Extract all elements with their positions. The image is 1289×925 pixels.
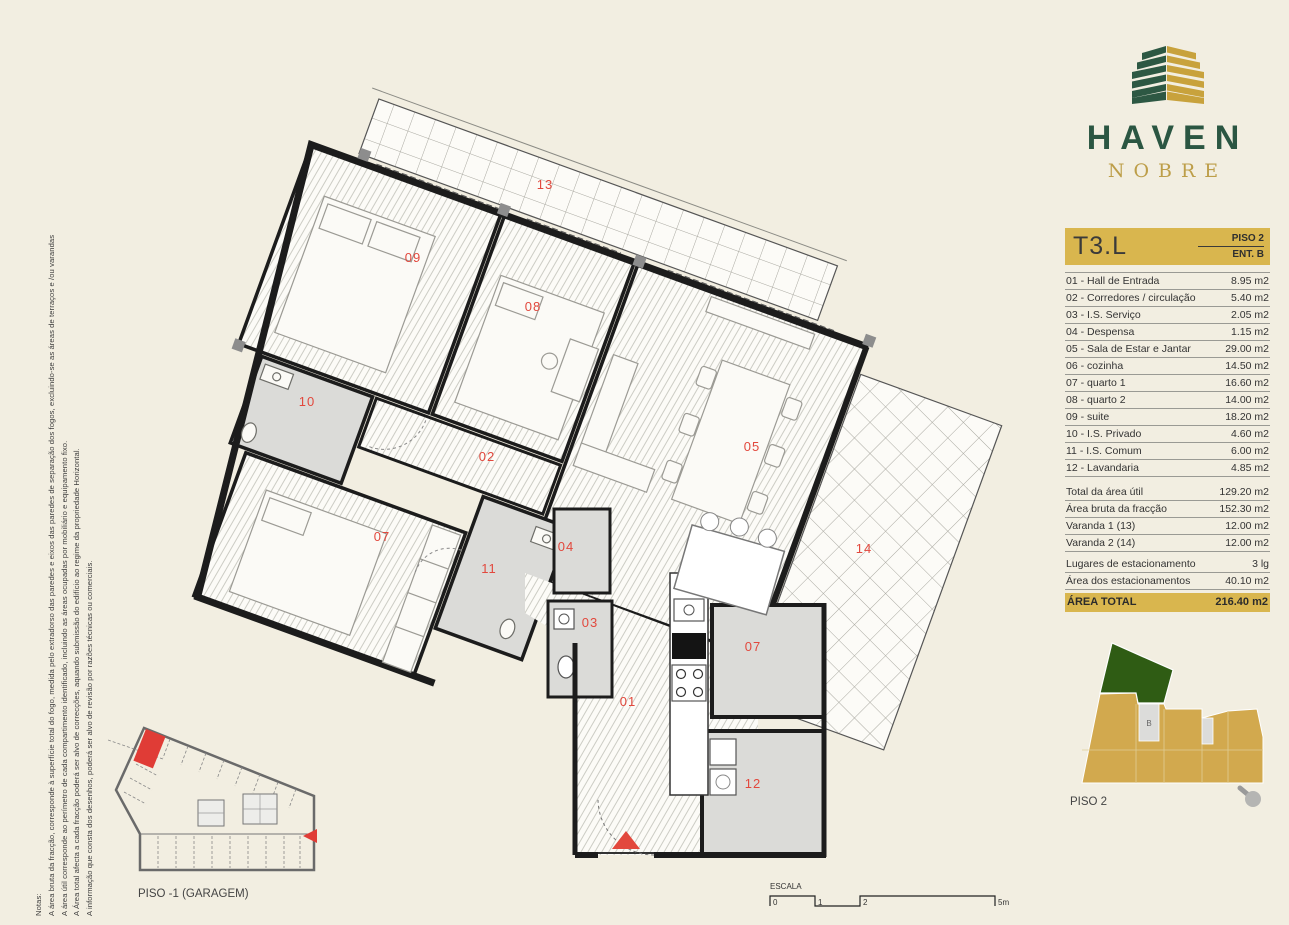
site-building [1082,693,1263,783]
table-row: Varanda 2 (14)12.00 m2 [1065,535,1270,552]
site-caption: PISO 2 [1070,796,1107,808]
scale-tick-0: 0 [773,898,778,907]
unit-floor: PISO 2 [1198,233,1264,244]
room-label-14: 14 [856,541,872,556]
table-row: 12 - Lavandaria4.85 m2 [1065,460,1270,477]
table-row: 05 - Sala de Estar e Jantar29.00 m2 [1065,341,1270,358]
room-label-11: 11 [481,561,497,576]
notes-title: Notas: [33,24,46,916]
brand-subname: NOBRE [1065,160,1270,182]
scale-tick-1: 1 [818,898,823,907]
areas-table: 01 - Hall de Entrada8.95 m2 02 - Corredo… [1065,272,1270,612]
unit-entrance: ENT. B [1198,249,1264,260]
garage-entry-arrow [303,829,317,843]
table-row: 11 - I.S. Comum6.00 m2 [1065,443,1270,460]
room-label-10: 10 [299,394,315,409]
table-row: 06 - cozinha14.50 m2 [1065,358,1270,375]
unit-code: T3.L [1073,232,1127,261]
room-label-13: 13 [537,177,553,192]
note-line: A área bruta da fracção, corresponde à s… [46,24,59,916]
scale-tick-5m: 5m [998,898,1009,907]
garage-plan: PISO -1 (GARAGEM) [108,712,368,917]
brand-logo-icon [1120,42,1216,104]
area-total-row: ÁREA TOTAL 216.40 m2 [1065,593,1270,612]
compass-icon [1245,791,1261,807]
table-row: 01 - Hall de Entrada8.95 m2 [1065,273,1270,290]
gray-room-07 [712,605,824,717]
table-row: Total da área útil129.20 m2 [1065,484,1270,501]
table-row: 03 - I.S. Serviço2.05 m2 [1065,307,1270,324]
room-label-05: 05 [744,439,760,454]
site-core-label: B [1146,719,1151,728]
table-row: 10 - I.S. Privado4.60 m2 [1065,426,1270,443]
table-row: Área dos estacionamentos40.10 m2 [1065,573,1270,590]
room-label-01: 01 [620,694,636,709]
scale-tick-2: 2 [863,898,868,907]
table-row: Varanda 1 (13)12.00 m2 [1065,518,1270,535]
table-row: 09 - suite18.20 m2 [1065,409,1270,426]
scale-title: ESCALA [770,882,802,891]
room-label-12: 12 [745,776,761,791]
room-label-09: 09 [405,250,421,265]
table-row: 02 - Corredores / circulação5.40 m2 [1065,290,1270,307]
banner-divider [1198,246,1264,247]
garage-caption: PISO -1 (GARAGEM) [138,888,249,900]
table-row: Lugares de estacionamento3 lg [1065,556,1270,573]
site-plan: B PISO 2 [1060,630,1289,840]
unit-floor-entrance: PISO 2 ENT. B [1198,233,1264,260]
garage-highlight-stall [133,729,165,768]
room-label-07b: 07 [745,639,761,654]
scale-bar: ESCALA 0 1 2 5m [757,878,1037,918]
table-row: 07 - quarto 116.60 m2 [1065,375,1270,392]
table-row: Área bruta da fracção152.30 m2 [1065,501,1270,518]
room-label-08: 08 [525,299,541,314]
brand-name: HAVEN [1065,119,1270,158]
room-label-03: 03 [582,615,598,630]
room-label-07: 07 [374,529,390,544]
table-row: 04 - Despensa1.15 m2 [1065,324,1270,341]
room-label-04: 04 [558,539,574,554]
room-label-02: 02 [479,449,495,464]
unit-banner: T3.L PISO 2 ENT. B [1065,228,1270,265]
table-row: 08 - quarto 214.00 m2 [1065,392,1270,409]
brand-logo: HAVEN NOBRE [1065,42,1270,182]
